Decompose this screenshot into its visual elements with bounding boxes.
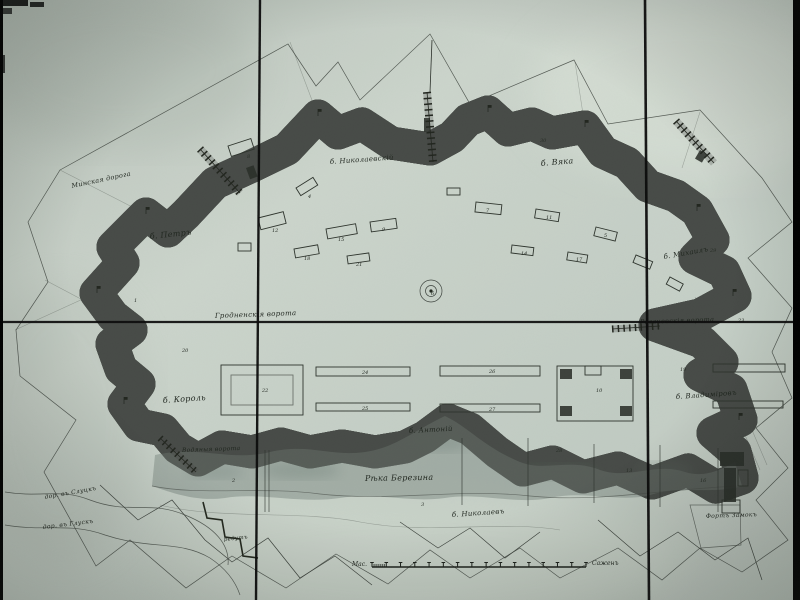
fortress-plan-image: Минская дорогаб. Петръб. Николаевскійб. … xyxy=(0,0,800,600)
fortress-plan-photo: Минская дорогаб. Петръб. Николаевскійб. … xyxy=(0,0,800,600)
photo-vignette xyxy=(0,0,800,600)
